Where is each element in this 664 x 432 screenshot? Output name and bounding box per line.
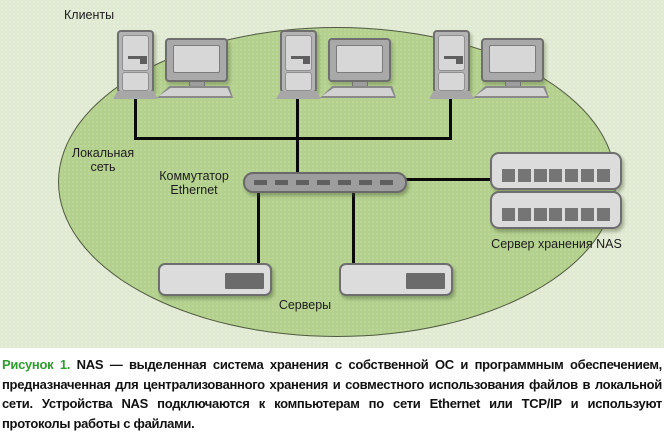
wire-client2-to-switch <box>296 96 299 174</box>
monitor-icon <box>481 38 544 82</box>
nas-port <box>502 169 515 182</box>
computer-tower-icon <box>117 30 154 93</box>
server-icon-2 <box>339 263 453 296</box>
wire-client1-to-bus <box>134 96 137 140</box>
label-nas-server: Сервер хранения NAS <box>484 237 629 251</box>
nas-unit-2 <box>490 191 622 229</box>
server-icon-1 <box>158 263 272 296</box>
switch-ports <box>254 180 396 185</box>
wire-switch-to-server1 <box>257 192 260 265</box>
figure-caption: Рисунок 1. NAS — выделенная система хран… <box>0 348 664 432</box>
nas-port <box>549 169 562 182</box>
client-workstation-2 <box>276 29 396 101</box>
client-workstation-3 <box>429 29 549 101</box>
nas-port <box>597 169 610 182</box>
figure-number-label: Рисунок 1. <box>2 357 70 372</box>
nas-port <box>581 169 594 182</box>
computer-tower-icon <box>433 30 470 93</box>
tower-upper-panel <box>122 35 149 71</box>
server-drive-bay <box>406 273 445 289</box>
nas-port <box>549 208 562 221</box>
figure-caption-text: NAS — выделенная система хранения с собс… <box>2 357 662 431</box>
figure-illustration: Клиенты Локальная сеть Коммутатор Ethern… <box>0 0 664 432</box>
wire-client3-to-bus <box>449 96 452 140</box>
nas-port <box>597 208 610 221</box>
wire-switch-to-server2 <box>352 192 355 265</box>
monitor-icon <box>328 38 391 82</box>
nas-port <box>534 169 547 182</box>
drive-button-icon <box>303 58 310 64</box>
nas-port <box>581 208 594 221</box>
label-servers: Серверы <box>255 298 355 312</box>
computer-tower-icon <box>280 30 317 93</box>
tower-base <box>276 91 321 99</box>
keyboard-icon <box>320 86 396 98</box>
nas-unit-1 <box>490 152 622 190</box>
tower-upper-panel <box>438 35 465 71</box>
label-local-network: Локальная сеть <box>60 146 146 174</box>
monitor-screen <box>173 45 220 73</box>
tower-lower-panel <box>438 72 465 91</box>
nas-port <box>518 169 531 182</box>
nas-port <box>518 208 531 221</box>
client-workstation-1 <box>113 29 233 101</box>
tower-base <box>429 91 474 99</box>
label-ethernet-switch: Коммутатор Ethernet <box>151 169 237 197</box>
wire-client-bus <box>134 137 452 140</box>
network-diagram: Клиенты Локальная сеть Коммутатор Ethern… <box>0 0 664 348</box>
label-clients: Клиенты <box>64 8 114 22</box>
monitor-screen <box>489 45 536 73</box>
keyboard-icon <box>473 86 549 98</box>
monitor-screen <box>336 45 383 73</box>
nas-port <box>502 208 515 221</box>
tower-lower-panel <box>122 72 149 91</box>
monitor-icon <box>165 38 228 82</box>
ethernet-switch-icon <box>243 172 407 193</box>
keyboard-icon <box>157 86 233 98</box>
tower-upper-panel <box>285 35 312 71</box>
wire-switch-to-nas <box>406 178 490 181</box>
nas-port <box>534 208 547 221</box>
tower-base <box>113 91 158 99</box>
nas-port <box>565 208 578 221</box>
drive-button-icon <box>140 58 147 64</box>
drive-button-icon <box>456 58 463 64</box>
tower-lower-panel <box>285 72 312 91</box>
nas-port <box>565 169 578 182</box>
server-drive-bay <box>225 273 264 289</box>
